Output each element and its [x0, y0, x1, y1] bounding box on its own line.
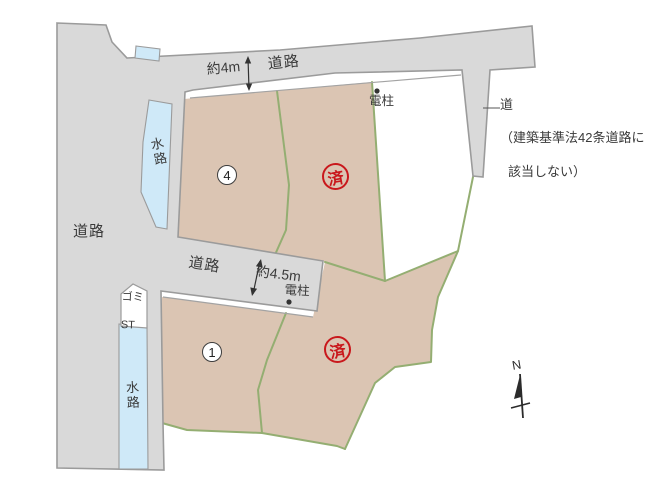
road-note-line1: （建築基準法42条道路に — [500, 130, 644, 145]
garbage-station-label: ゴミ ST — [121, 291, 144, 333]
gomi-line1: ゴミ — [122, 291, 144, 304]
road-note-title: 道 — [500, 97, 513, 112]
site-plan-drawing — [0, 0, 670, 500]
road-note-line2: 該当しない） — [500, 164, 586, 181]
road-label-top: 道路 — [267, 53, 301, 74]
gomi-line2: ST — [121, 318, 135, 330]
north-arrow-icon — [511, 374, 530, 418]
pole-label-top: 電柱 — [369, 94, 394, 109]
pole-label-mid: 電柱 — [284, 283, 310, 299]
lot1-number-badge: 1 — [202, 342, 222, 362]
road-note: 道 （建築基準法42条道路に 該当しない） — [500, 97, 644, 180]
water-patch-top — [135, 46, 160, 61]
road-width-top: 約4m — [206, 58, 241, 78]
lot4-number-badge: 4 — [217, 165, 237, 185]
site-plan-map: 道路 約4m 道路 道路 約4.5m 電柱 電柱 道 （建築基準法42条道路に … — [0, 0, 670, 500]
road-label-left: 道路 — [73, 223, 105, 241]
pole-dot-top — [374, 88, 379, 93]
pole-dot-mid — [286, 299, 291, 304]
waterway-label-lower: 水路 — [123, 380, 140, 411]
